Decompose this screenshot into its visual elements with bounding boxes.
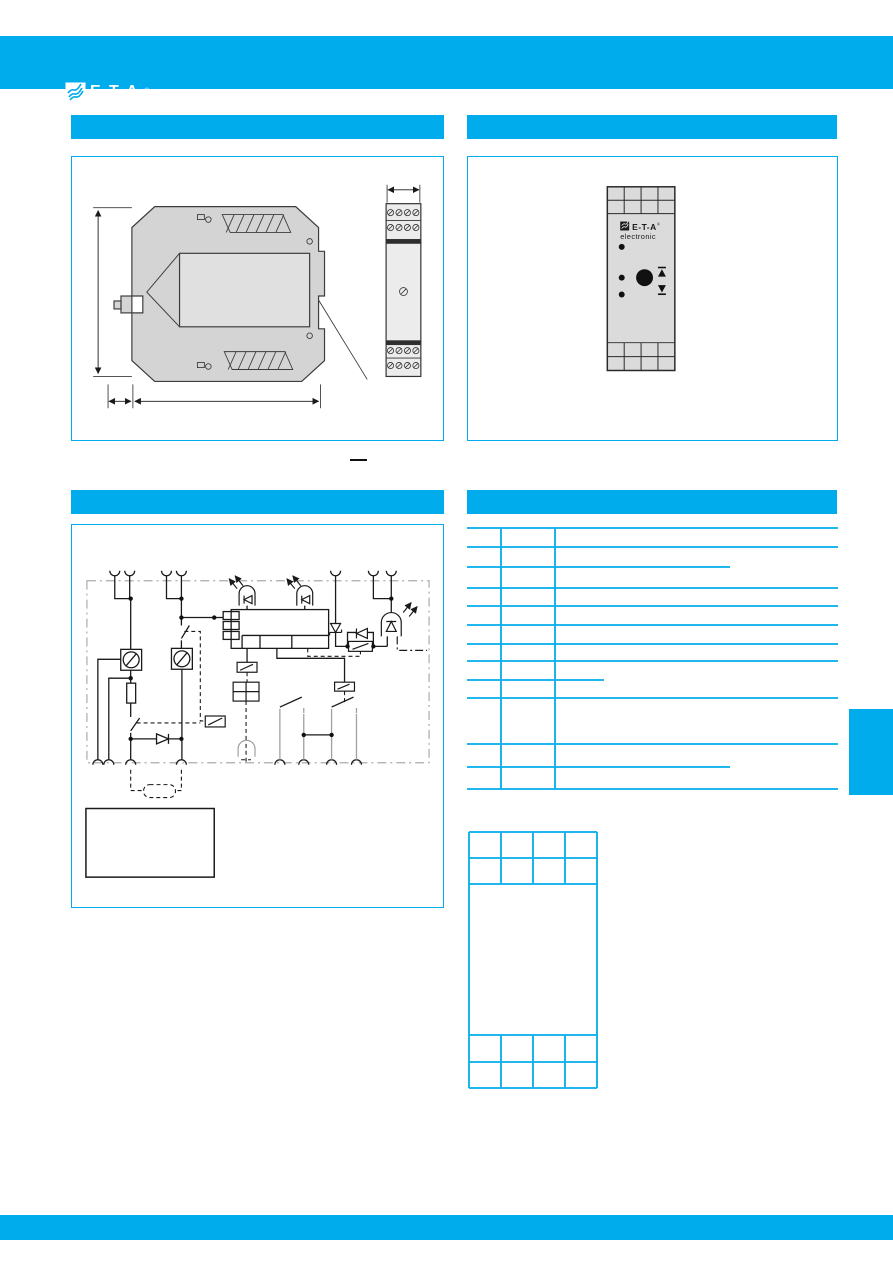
pointer-line <box>319 300 368 379</box>
housing-front-strip <box>386 204 421 377</box>
contact-rails <box>280 708 357 760</box>
section-header-dimensions <box>71 115 444 139</box>
led-indicator <box>619 275 625 281</box>
registered-mark: ® <box>144 88 149 96</box>
relay-coil-3 <box>335 682 355 691</box>
device-brand: E-T-A ® electronic <box>620 221 660 241</box>
section-header-circuit <box>71 490 444 514</box>
potentiometer-2 <box>171 648 192 669</box>
ordering-table <box>462 826 604 1094</box>
section-header-terminals <box>467 490 837 514</box>
zener-diode <box>330 623 342 635</box>
housing-label-area <box>180 253 310 326</box>
diode <box>157 734 169 744</box>
device-registered-mark: ® <box>657 222 660 227</box>
device-brand-text: E-T-A <box>632 222 657 232</box>
potentiometer-1 <box>121 649 142 670</box>
terminals-top <box>110 571 396 576</box>
footer-bar <box>0 1215 893 1240</box>
dimension-drawing-panel <box>71 156 444 441</box>
legend-box <box>86 809 214 878</box>
datasheet-page: E-T-A ® <box>0 0 893 1263</box>
dashed-links <box>131 631 361 797</box>
led-symbol-3 <box>381 603 427 651</box>
fraction-bar <box>350 459 367 461</box>
circuit-diagram-panel <box>71 524 444 908</box>
crossed-square <box>233 682 259 701</box>
eta-logo-text: E-T-A <box>90 82 139 102</box>
led-indicator <box>619 292 625 298</box>
eta-logo: E-T-A ® <box>65 81 149 103</box>
housing-side-view <box>114 207 325 382</box>
adjust-knob <box>636 269 653 286</box>
page-index-tab <box>849 709 893 795</box>
resistor <box>127 683 136 703</box>
header-bar: E-T-A ® <box>0 36 893 89</box>
relay-coil-1 <box>205 716 225 727</box>
device-module: E-T-A ® electronic <box>607 187 675 371</box>
enclosure-boundary <box>87 581 429 763</box>
device-logo-icon <box>620 222 629 231</box>
control-ic <box>223 610 328 649</box>
device-brand-sub: electronic <box>620 232 656 241</box>
junction-dots <box>128 596 393 741</box>
device-front-view: E-T-A ® electronic <box>468 157 837 440</box>
front-view-panel: E-T-A ® electronic <box>467 156 838 441</box>
terminals-table <box>460 520 845 796</box>
dimension-drawing <box>72 157 443 440</box>
section-header-front-view <box>467 115 837 139</box>
circuit-diagram <box>72 525 443 907</box>
eta-logo-icon <box>65 82 86 103</box>
led-indicator <box>619 244 625 250</box>
relay-coil-2 <box>237 662 257 672</box>
